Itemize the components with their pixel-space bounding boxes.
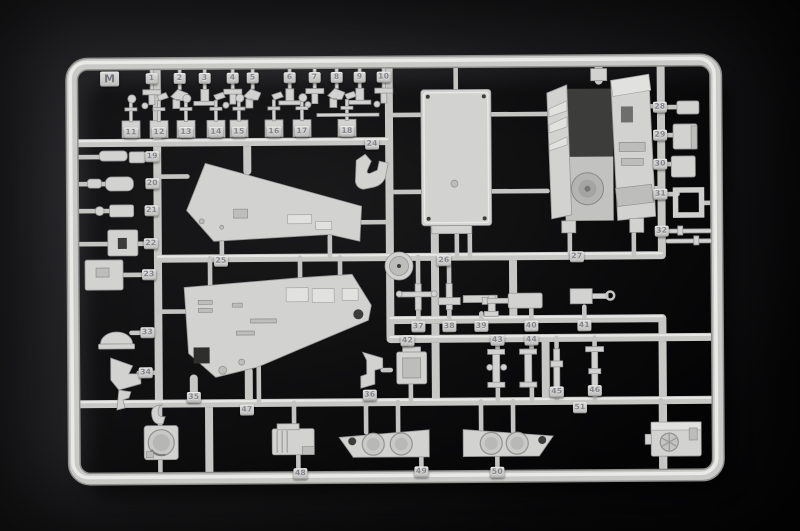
part-tag-35: 35	[187, 392, 201, 403]
part-tag-19: 19	[145, 151, 159, 162]
sprue-photo: M 12345678910111213141516171819202122232…	[0, 0, 800, 531]
part-tag-9: 9	[354, 72, 366, 83]
sprue-letter-tag: M	[100, 71, 119, 86]
part-tag-34: 34	[139, 367, 153, 378]
part-tag-11: 11	[124, 127, 138, 138]
part-tag-48: 48	[293, 468, 307, 479]
part-tag-8: 8	[331, 72, 343, 83]
part-tag-6: 6	[284, 72, 296, 83]
part-tag-4: 4	[227, 73, 239, 84]
part-tag-2: 2	[174, 73, 186, 84]
part-tag-51: 51	[573, 402, 587, 413]
part-tag-16: 16	[267, 126, 281, 137]
sprue: M 12345678910111213141516171819202122232…	[0, 0, 800, 531]
part-tag-29: 29	[653, 130, 667, 141]
part-tag-22: 22	[144, 238, 158, 249]
part-tag-18: 18	[340, 126, 354, 137]
part-tag-43: 43	[490, 335, 504, 346]
part-tag-37: 37	[411, 321, 425, 332]
part-tag-10: 10	[377, 72, 391, 83]
part-tag-47: 47	[240, 405, 254, 416]
part-tag-1: 1	[146, 73, 158, 84]
part-tag-30: 30	[653, 159, 667, 170]
part-tag-38: 38	[442, 321, 456, 332]
part-tag-45: 45	[550, 386, 564, 397]
part-tag-12: 12	[152, 127, 166, 138]
part-tag-3: 3	[199, 73, 211, 84]
part-tag-31: 31	[653, 189, 667, 200]
part-tag-27: 27	[570, 251, 584, 262]
part-tag-14: 14	[209, 127, 223, 138]
part-tag-20: 20	[145, 178, 159, 189]
part-tag-44: 44	[524, 335, 538, 346]
part-tag-7: 7	[309, 72, 321, 83]
part-tag-41: 41	[577, 320, 591, 331]
part-tag-46: 46	[588, 385, 602, 396]
part-tag-36: 36	[363, 390, 377, 401]
part-tag-26: 26	[437, 255, 451, 266]
part-tag-25: 25	[214, 256, 228, 267]
part-tag-40: 40	[524, 321, 538, 332]
part-number-tags: M 12345678910111213141516171819202122232…	[0, 0, 800, 531]
part-tag-13: 13	[179, 127, 193, 138]
part-tag-39: 39	[474, 321, 488, 332]
part-tag-15: 15	[232, 127, 246, 138]
part-tag-50: 50	[490, 467, 504, 478]
part-tag-49: 49	[414, 466, 428, 477]
part-tag-32: 32	[655, 226, 669, 237]
part-tag-42: 42	[400, 335, 414, 346]
part-tag-33: 33	[140, 327, 154, 338]
part-tag-24: 24	[365, 139, 379, 150]
part-tag-28: 28	[653, 102, 667, 113]
part-tag-5: 5	[247, 72, 259, 83]
part-tag-23: 23	[142, 269, 156, 280]
part-tag-17: 17	[295, 126, 309, 137]
part-tag-21: 21	[145, 205, 159, 216]
